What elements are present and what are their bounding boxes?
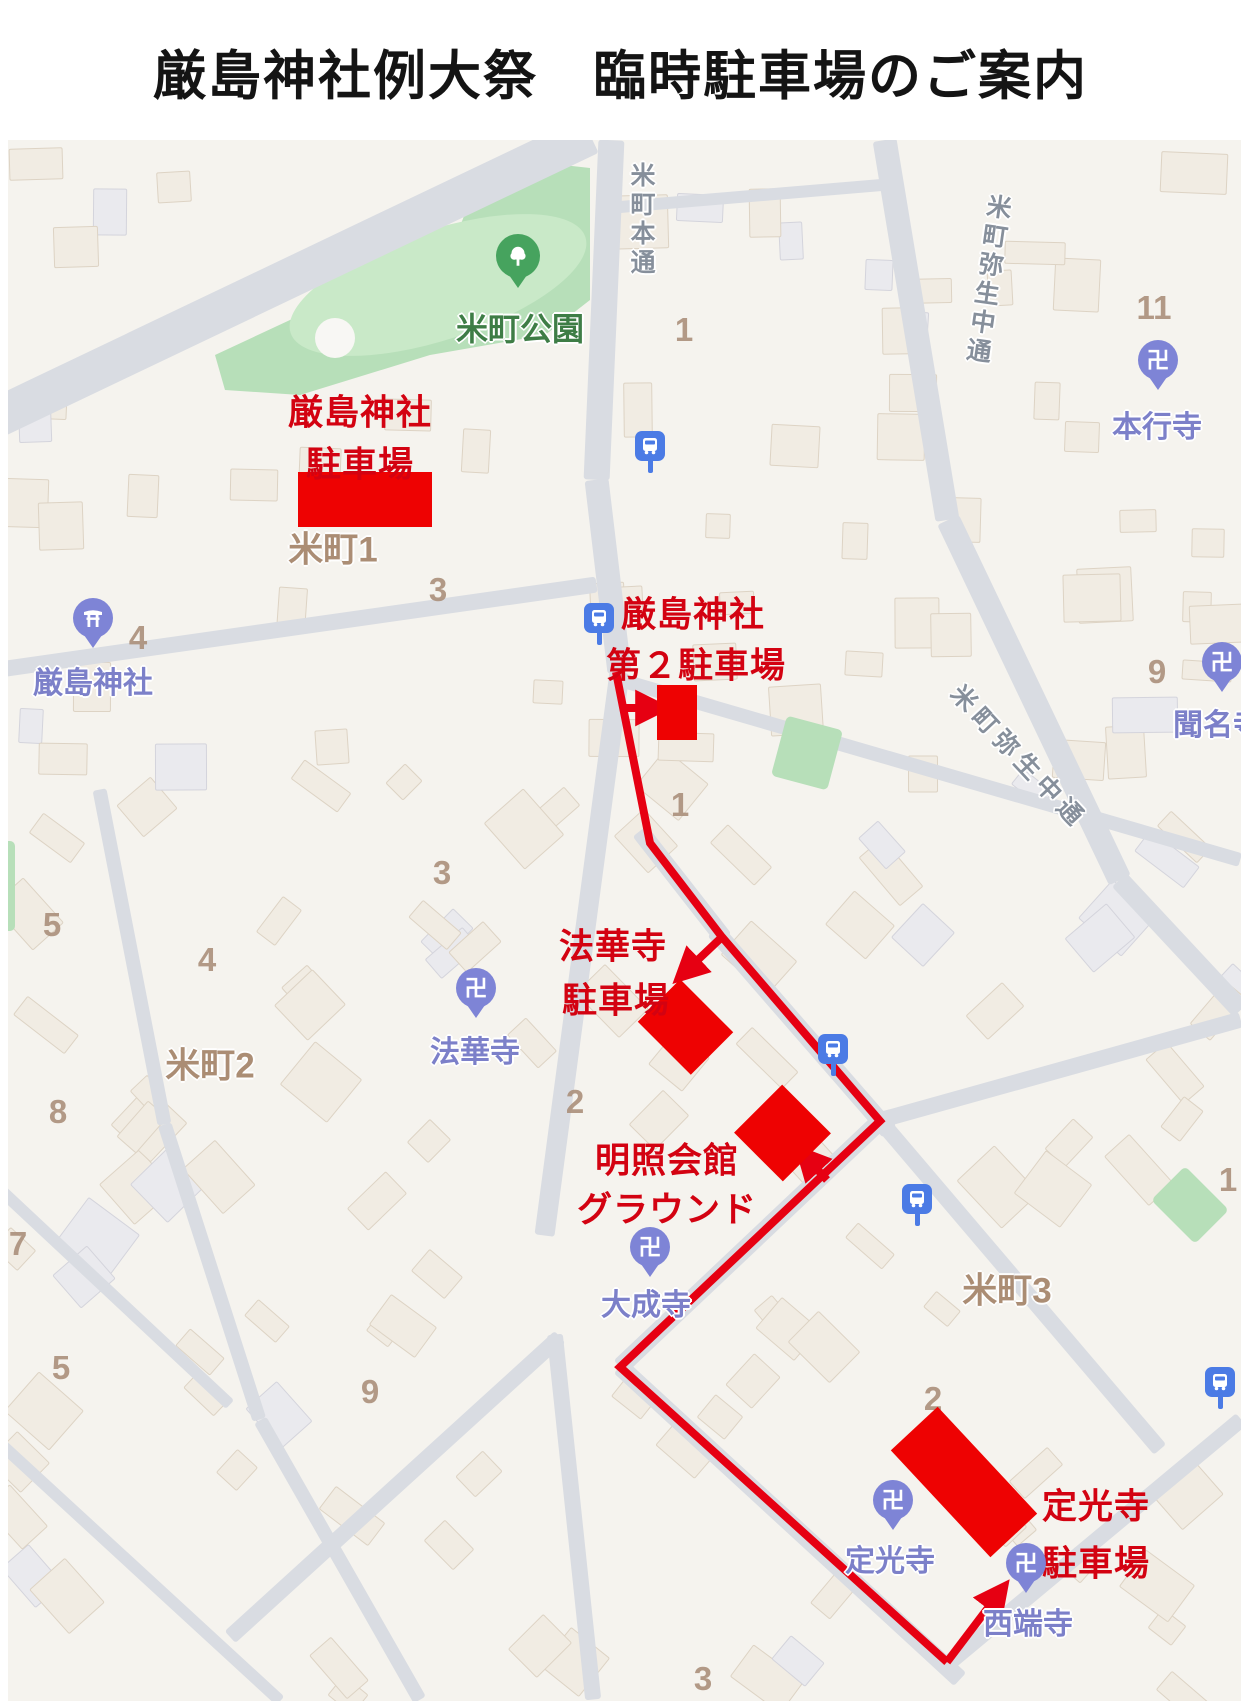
building	[1062, 573, 1121, 622]
poi-label-seitanji: 西端寺	[983, 1599, 1073, 1643]
page-title: 厳島神社例大祭 臨時駐車場のご案内	[0, 34, 1241, 110]
block-number: 11	[1137, 289, 1172, 327]
district-label-komachi2: 米町2	[165, 1038, 254, 1089]
block-number: 5	[52, 1349, 70, 1387]
building	[38, 743, 88, 776]
building	[623, 382, 653, 437]
building	[1112, 697, 1178, 734]
building	[532, 679, 563, 704]
building	[769, 424, 820, 469]
building	[230, 469, 279, 502]
block-number: 5	[43, 906, 61, 944]
block-number: 1	[675, 311, 693, 349]
block-number: 8	[49, 1093, 67, 1131]
manji-glyph: 卍	[1211, 651, 1234, 674]
poi-label-jokoji: 定光寺	[845, 1536, 935, 1580]
block-number: 9	[1148, 653, 1166, 691]
district-label-komachi1: 米町1	[288, 522, 377, 573]
poi-label-hongyoji: 本行寺	[1112, 402, 1202, 446]
parking-label: 明照会館	[595, 1133, 739, 1184]
building	[1189, 603, 1241, 645]
building	[705, 513, 731, 539]
building	[1033, 382, 1060, 421]
building	[1191, 528, 1225, 558]
building	[461, 428, 491, 473]
block-number: 3	[429, 571, 447, 609]
block-number: 2	[566, 1083, 584, 1121]
shrine-torii-pin-icon	[73, 598, 113, 648]
block-number: 9	[361, 1373, 379, 1411]
building	[314, 728, 349, 765]
green-patch	[8, 841, 15, 931]
poi-label-hokkeji: 法華寺	[430, 1027, 520, 1071]
park-pond	[315, 318, 355, 358]
building	[1053, 257, 1102, 312]
poi-label-monmyoji: 聞名寺	[1173, 700, 1241, 744]
block-number: 4	[198, 941, 216, 979]
park-tree-pin-icon	[496, 234, 540, 288]
bus-stop-icon	[635, 431, 665, 473]
temple-pin-icon: 卍	[1202, 642, 1241, 692]
parking-label: 駐車場	[306, 437, 414, 488]
street-label-komachi-hondori: 米町本通	[623, 162, 659, 278]
flyer-page: 厳島神社例大祭 臨時駐車場のご案内 米町本通 米町弥生中通 米町弥生中通 米町1…	[0, 0, 1241, 1701]
building	[1004, 241, 1066, 265]
bus-stop-icon	[1205, 1367, 1235, 1409]
building	[841, 522, 868, 560]
building	[9, 147, 64, 180]
temple-pin-icon: 卍	[1006, 1543, 1046, 1593]
bus-stop-icon	[902, 1184, 932, 1226]
block-number: 4	[129, 619, 147, 657]
block-number: 3	[694, 1660, 712, 1698]
block-number: 1	[671, 786, 689, 824]
building	[864, 259, 893, 291]
bus-stop-icon	[818, 1034, 848, 1076]
temple-pin-icon: 卍	[1138, 340, 1178, 390]
manji-glyph: 卍	[1015, 1552, 1038, 1575]
building	[38, 501, 84, 550]
parking-label: 定光寺	[1042, 1479, 1150, 1530]
parking-label: 駐車場	[1042, 1536, 1150, 1587]
map-canvas: 米町本通 米町弥生中通 米町弥生中通 米町1 米町2 米町3 1 1 1 2 2…	[8, 140, 1241, 1701]
block-number: 1	[1219, 1161, 1237, 1199]
district-label-komachi3: 米町3	[962, 1263, 1051, 1314]
poi-label-taiseiji: 大成寺	[601, 1280, 691, 1324]
building	[778, 221, 804, 260]
building	[53, 226, 99, 268]
manji-glyph: 卍	[639, 1236, 662, 1259]
building	[1160, 151, 1229, 195]
parking-rect-itsukushima2	[657, 685, 697, 740]
parking-label: 第２駐車場	[606, 638, 786, 689]
building	[1119, 509, 1157, 533]
parking-label: 厳島神社	[288, 385, 432, 436]
building	[156, 171, 192, 204]
parking-label: 法華寺	[559, 919, 667, 970]
building	[18, 708, 44, 744]
temple-pin-icon: 卍	[873, 1480, 913, 1530]
bus-stop-icon	[584, 603, 614, 645]
manji-glyph: 卍	[465, 977, 488, 1000]
building	[155, 743, 207, 790]
temple-pin-icon: 卍	[630, 1227, 670, 1277]
parking-label: グラウンド	[577, 1182, 757, 1233]
building	[930, 613, 972, 658]
temple-pin-icon: 卍	[456, 968, 496, 1018]
building	[844, 650, 883, 677]
parking-label: 厳島神社	[621, 587, 765, 638]
block-number: 7	[9, 1225, 27, 1263]
manji-glyph: 卍	[882, 1489, 905, 1512]
block-number: 3	[433, 854, 451, 892]
building	[1064, 421, 1100, 453]
poi-label-park: 米町公園	[456, 304, 584, 350]
manji-glyph: 卍	[1147, 349, 1170, 372]
parking-label: 駐車場	[562, 973, 670, 1024]
poi-label-itsukushima-shrine: 厳島神社	[33, 658, 153, 702]
building	[127, 474, 160, 518]
